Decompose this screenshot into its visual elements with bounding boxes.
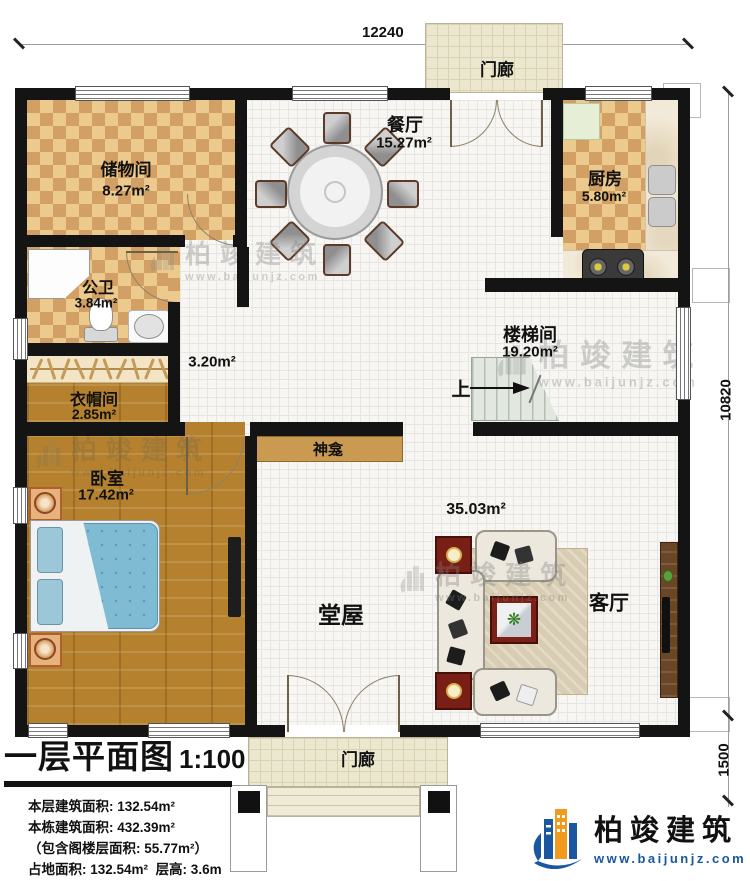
room-area-bath: 3.84m² xyxy=(75,296,118,311)
burner xyxy=(617,258,635,276)
bed-pillow xyxy=(37,579,63,625)
info-line: （包含阁楼层面积: 55.77m²） xyxy=(28,838,254,859)
dim-line-right xyxy=(728,92,729,807)
side-table xyxy=(435,536,472,574)
info-line: 本栋建筑面积: 432.39m² xyxy=(28,817,254,838)
room-label-bath: 公卫 xyxy=(82,274,114,298)
room-label-hall: 堂屋 xyxy=(318,596,364,630)
dining-chair xyxy=(323,244,351,276)
lamp xyxy=(34,638,56,660)
window xyxy=(676,307,691,400)
brand-name: 柏竣建筑 xyxy=(594,807,746,849)
dim-top: 12240 xyxy=(362,24,404,41)
plan-title: 一层平面图 xyxy=(4,730,174,778)
room-area-stair: 19.20m² xyxy=(502,344,558,361)
plant-icon: ❋ xyxy=(507,610,521,630)
window xyxy=(13,318,28,360)
room-area-hallway: 3.20m² xyxy=(188,354,236,371)
room-label-living: 客厅 xyxy=(589,587,629,616)
sofa-bottom xyxy=(473,668,557,716)
tv-plant xyxy=(663,570,673,582)
dining-chair xyxy=(387,180,419,208)
side-table xyxy=(435,672,472,710)
stairs-arrow-line xyxy=(470,387,515,389)
shrine-label: 神龛 xyxy=(313,439,343,460)
room-label-dining: 餐厅 xyxy=(387,111,423,137)
room-label-kitchen: 厨房 xyxy=(588,165,622,190)
room-area-dining: 15.27m² xyxy=(376,135,432,152)
brand-logo-icon xyxy=(528,803,586,869)
dim-bottom-right: 1500 xyxy=(716,743,733,776)
brand-logo: 柏竣建筑 www.baijunjz.com xyxy=(528,803,746,869)
bottom-porch-label: 门廊 xyxy=(341,746,375,771)
kitchen-sink xyxy=(648,197,676,227)
room-area-cloak: 2.85m² xyxy=(72,406,116,422)
plan-scale: 1:100 xyxy=(179,744,246,775)
dim-line-top xyxy=(18,44,688,45)
stairs-arrow-head xyxy=(513,382,530,394)
bath-sink-bowl xyxy=(134,314,164,339)
lamp xyxy=(34,492,56,514)
window xyxy=(75,86,190,101)
tv xyxy=(662,597,670,653)
title-underline xyxy=(4,781,232,787)
bedroom-tv xyxy=(228,537,241,617)
dim-right: 10820 xyxy=(718,379,735,421)
window xyxy=(13,487,28,524)
porch-column xyxy=(428,791,450,813)
exterior-platform xyxy=(692,268,730,303)
room-area-storage: 8.27m² xyxy=(102,183,150,200)
top-porch-label: 门廊 xyxy=(480,56,514,81)
stairs-up-label: 上 xyxy=(451,375,470,402)
info-line: 本层建筑面积: 132.54m² xyxy=(28,796,254,817)
dining-chair xyxy=(323,112,351,144)
window xyxy=(480,723,640,738)
info-line: 占地面积: 132.54m² 层高: 3.6m xyxy=(28,859,254,880)
exterior-platform xyxy=(683,697,730,732)
floor-plan-canvas: 12240 10820 1500 门廊 xyxy=(0,0,750,881)
room-label-storage: 储物间 xyxy=(101,156,152,181)
room-area-kitchen: 5.80m² xyxy=(582,188,626,204)
fridge xyxy=(563,103,600,140)
porch-steps xyxy=(267,787,420,817)
kitchen-sink xyxy=(648,165,676,195)
burner xyxy=(589,258,607,276)
brand-url: www.baijunjz.com xyxy=(594,851,746,866)
room-area-bedroom: 17.42m² xyxy=(78,487,134,504)
window xyxy=(585,86,652,101)
room-area-hall: 35.03m² xyxy=(446,501,506,519)
window xyxy=(13,633,28,669)
dining-chair xyxy=(255,180,287,208)
window xyxy=(292,86,388,101)
title-block: 一层平面图 1:100 本层建筑面积: 132.54m² 本栋建筑面积: 432… xyxy=(4,730,254,880)
bed-pillow xyxy=(37,527,63,573)
